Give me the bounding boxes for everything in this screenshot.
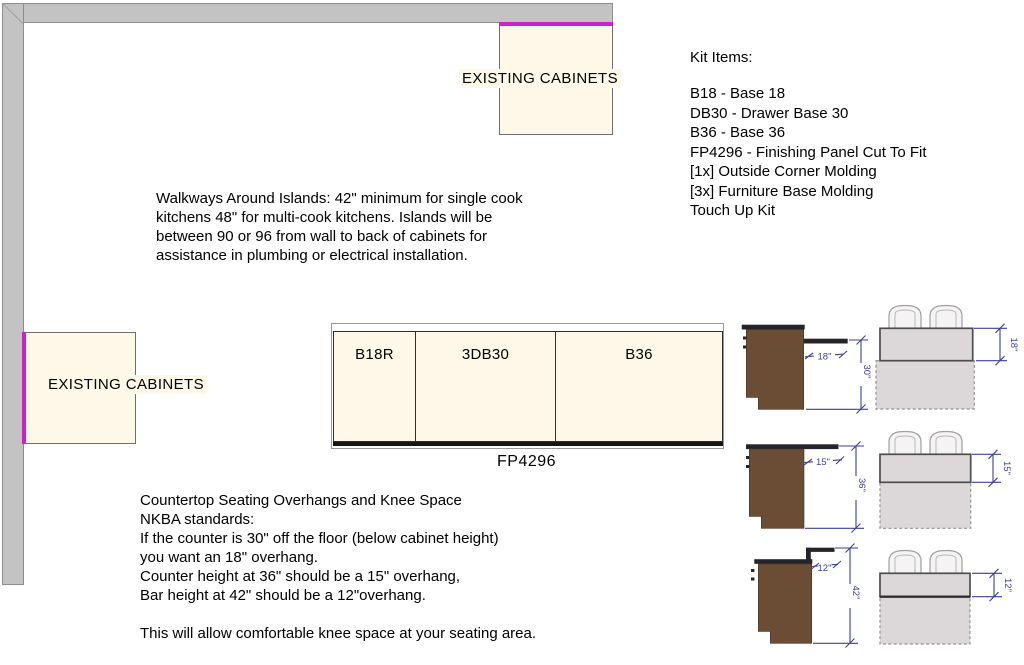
plan-overhang-dimension [974,324,1007,365]
island-cabinet-b18r: B18R [333,331,416,442]
overhang-counter-bar [804,339,848,344]
kit-item: Touch Up Kit [690,201,927,221]
seating-footer: This will allow comfortable knee space a… [140,624,536,643]
hinge-tick [751,578,754,581]
section-36in-counter: 15" 36" 15" [746,432,1012,533]
existing-cabinets-left-label: EXISTING CABINETS [45,375,207,394]
walkways-line: Walkways Around Islands: 42" minimum for… [156,189,523,208]
overhang-dimension-label: 18" [818,352,832,363]
countertop-profile [754,559,812,564]
kit-item: FP4296 - Finishing Panel Cut To Fit [690,143,927,163]
existing-cabinets-top-label: EXISTING CABINETS [459,69,621,88]
height-dimension-label: 42" [850,586,861,600]
island-cabinet-3db30: 3DB30 [415,331,556,442]
section-42in-bar: 12" 42" 12" [751,544,1013,648]
kit-items-block: Kit Items: B18 - Base 18 DB30 - Drawer B… [690,48,927,221]
kit-item: [1x] Outside Corner Molding [690,162,927,182]
section-30in-counter: 18" 30" 18" [742,306,1019,414]
height-dimension-label: 30" [861,365,872,379]
walkways-line: kitchens 48" for multi-cook kitchens. Is… [156,208,523,227]
plan-overhang-dimension [972,450,1001,487]
cabinet-body [749,449,804,528]
countertop-profile [742,325,805,330]
overhang-dimension-label: 12" [818,563,832,574]
kit-item: [3x] Furniture Base Molding [690,182,927,202]
overhang-dimension-label: 15" [816,457,830,468]
seating-line: NKBA standards: [140,510,536,529]
wall-attachment-strip-left [22,332,26,444]
walkways-line: assistance in plumbing or electrical ins… [156,246,523,265]
counter-plan-solid [880,573,970,596]
cabinet-body [746,330,803,410]
kit-item: B36 - Base 36 [690,123,927,143]
kit-item: B18 - Base 18 [690,84,927,104]
cabinet-plan-dashed [876,361,974,409]
seating-line: If the counter is 30" off the floor (bel… [140,529,536,548]
kitchen-plan-document: { "colors": { "wall_gray": "#c3c3c3", "c… [0,0,1024,665]
finishing-panel-label: FP4296 [497,453,556,471]
kit-items-title: Kit Items: [690,48,927,67]
cabinet-body [758,564,811,644]
walkways-line: between 90 or 96 from wall to back of ca… [156,227,523,246]
height-dimension-label: 36" [856,478,867,492]
counter-plan-solid [880,454,971,482]
plan-overhang-label: 15" [1001,461,1012,475]
seating-line: Bar height at 42" should be a 12"overhan… [140,586,536,605]
hinge-tick [746,465,749,468]
countertop-profile [746,444,839,449]
plan-overhang-label: 18" [1008,338,1019,352]
height-dimension [805,442,864,533]
overhang-diagrams: 18" 30" 18" [735,300,1024,665]
plan-overhang-label: 12" [1002,578,1013,592]
wall-top [2,3,613,23]
counter-plan-solid [880,328,973,360]
hinge-tick [743,346,746,349]
finishing-panel [333,442,723,446]
walkways-note: Walkways Around Islands: 42" minimum for… [156,189,523,265]
cabinet-plan-dashed [880,482,971,528]
hinge-tick [751,569,754,572]
seating-line: you want an 18" overhang. [140,548,536,567]
seating-note: Countertop Seating Overhangs and Knee Sp… [140,491,536,643]
seating-line: Countertop Seating Overhangs and Knee Sp… [140,491,536,510]
wall-attachment-strip-top [499,22,613,26]
kit-item: DB30 - Drawer Base 30 [690,104,927,124]
kit-items-list: B18 - Base 18 DB30 - Drawer Base 30 B36 … [690,84,927,221]
cabinet-plan-dashed [880,597,970,644]
seating-line: Counter height at 36" should be a 15" ov… [140,567,536,586]
island-cabinet-b36: B36 [555,331,723,442]
wall-left [2,3,24,585]
hinge-tick [746,456,749,459]
height-dimension [806,336,868,414]
hinge-tick [743,337,746,340]
plan-overhang-dimension [972,569,1002,601]
